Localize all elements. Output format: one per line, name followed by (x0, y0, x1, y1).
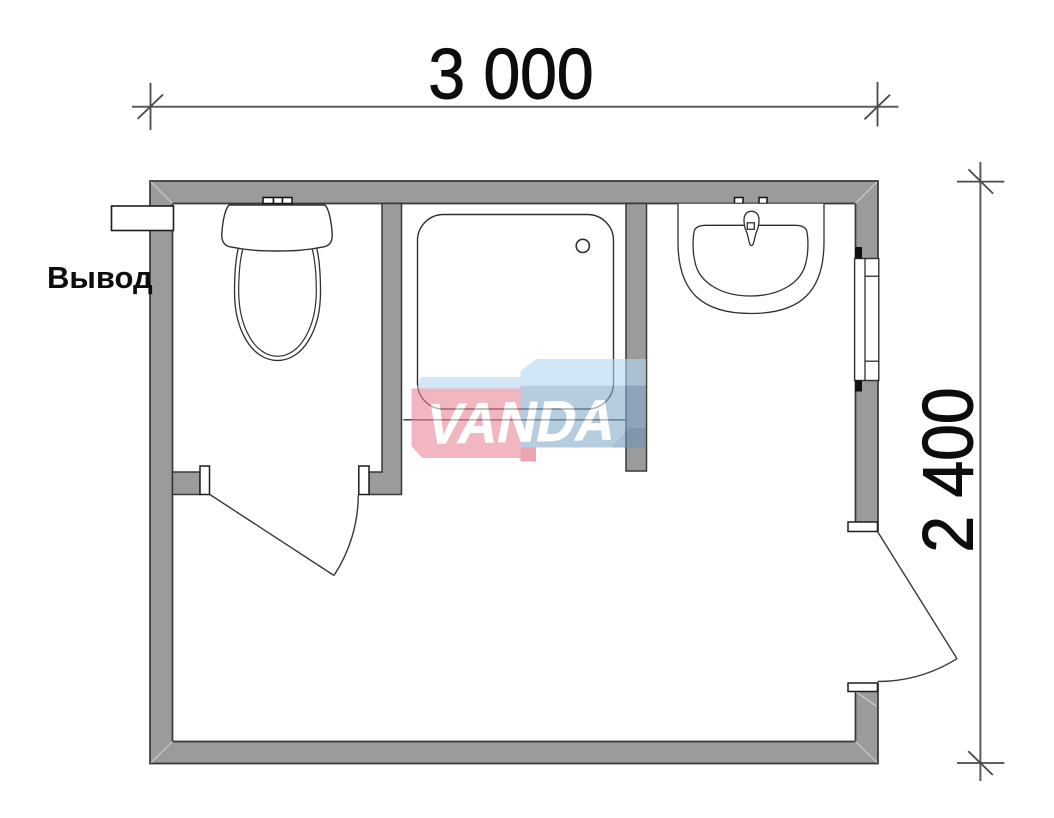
svg-text:VANDA: VANDA (421, 388, 622, 456)
svg-text:Вывод: Вывод (47, 260, 153, 295)
svg-text:2 400: 2 400 (908, 387, 988, 552)
svg-text:3 000: 3 000 (428, 34, 593, 114)
